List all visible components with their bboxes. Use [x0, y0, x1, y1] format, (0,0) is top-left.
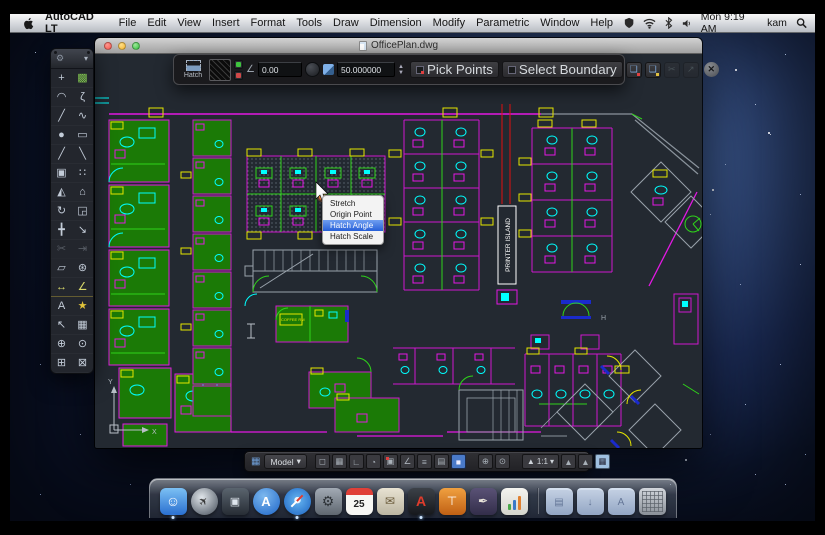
- scale-icon: [323, 64, 334, 75]
- select-boundary-button[interactable]: Select Boundary: [502, 61, 623, 78]
- lineweight-toggle[interactable]: ≡: [417, 454, 432, 469]
- drawing-canvas[interactable]: PRINTER ISLAND: [95, 54, 702, 448]
- properties-toggle[interactable]: ▤: [434, 454, 449, 469]
- ucs-y-label: Y: [108, 379, 113, 386]
- menu-file[interactable]: File: [119, 17, 137, 29]
- dock: ☺✈▣A⚙25✉A⊤✒▤↓A: [149, 478, 677, 518]
- coffee-room-label: COFFEE RM: [281, 317, 305, 322]
- utility-closet: [674, 294, 698, 344]
- otrack-toggle[interactable]: ∠: [400, 454, 415, 469]
- applications-folder-dock-icon[interactable]: A: [608, 486, 635, 516]
- volume-icon[interactable]: [682, 18, 692, 29]
- add-boundary-icon[interactable]: ❏: [626, 62, 642, 78]
- layout-grid-icon[interactable]: ▦: [251, 456, 260, 467]
- menu-view[interactable]: View: [177, 17, 201, 29]
- selection-tool[interactable]: +: [51, 69, 72, 88]
- wifi-icon[interactable]: [643, 18, 656, 29]
- autocad-dock-icon-tile: A: [408, 488, 435, 515]
- downloads-folder-dock-icon-tile: ↓: [577, 488, 604, 515]
- numbers-dock-icon[interactable]: [501, 486, 528, 516]
- annotation-icon: ▲: [527, 457, 535, 466]
- context-menu-item-hatch-scale[interactable]: Hatch Scale: [323, 231, 383, 242]
- scale-tool[interactable]: ◲: [72, 202, 93, 221]
- insert-block-tool[interactable]: ★: [72, 297, 93, 316]
- circle-tool[interactable]: ●: [51, 126, 72, 145]
- trash-dock-icon[interactable]: [639, 486, 666, 516]
- numbers-dock-icon-tile: [501, 488, 528, 515]
- calendar-dock-icon[interactable]: 25: [346, 486, 373, 516]
- trim-hatch-icon: ✂: [664, 62, 680, 78]
- hatch-color-red-button[interactable]: [234, 71, 243, 80]
- nav-buttons: ⊕⊙: [478, 454, 510, 469]
- documents-folder-dock-icon-tile: ▤: [546, 488, 573, 515]
- autocad-window: OfficePlan.dwg: [95, 38, 702, 448]
- hatch-scale-input[interactable]: [337, 62, 395, 77]
- menu-window[interactable]: Window: [540, 17, 579, 29]
- shield-icon[interactable]: [624, 17, 634, 29]
- array-tool[interactable]: ∷: [72, 164, 93, 183]
- h-marker: H: [601, 315, 606, 322]
- dock-separator: [532, 486, 542, 516]
- table-tool[interactable]: ▦: [72, 316, 93, 335]
- rectangle-tool[interactable]: ▭: [72, 126, 93, 145]
- app-menu-title[interactable]: AutoCAD LT: [45, 14, 107, 35]
- annotation-visibility-button[interactable]: ▲: [578, 454, 593, 469]
- context-menu: StretchOrigin PointHatch AngleHatch Scal…: [322, 195, 384, 245]
- menu-bar-user[interactable]: kam: [767, 17, 787, 29]
- screw-decoration: [54, 51, 57, 54]
- annotation-scale-dropdown[interactable]: ▲ 1:1 ▾: [522, 454, 559, 469]
- arc-tool[interactable]: ◠: [51, 88, 72, 107]
- move-tool[interactable]: ╋: [51, 221, 72, 240]
- launchpad-dock-icon-tile: ✈: [191, 488, 218, 515]
- printer-island: PRINTER ISLAND: [497, 104, 517, 304]
- hatch-angle-input[interactable]: [258, 62, 302, 77]
- trash-dock-icon-tile: [639, 488, 666, 515]
- launchpad-dock-icon[interactable]: ✈: [191, 486, 218, 516]
- hatch-editor-toolbar: Hatch ∠ ▲▼ Pick Points Select Boundary ❏…: [173, 54, 625, 85]
- mail-dock-icon-tile: ✉: [377, 488, 404, 515]
- double-doors: H: [561, 300, 606, 322]
- scale-stepper[interactable]: ▲▼: [398, 64, 407, 76]
- hatch-tool-label: Hatch: [184, 72, 202, 79]
- inherit-properties-icon: ↗: [683, 62, 699, 78]
- bluetooth-icon[interactable]: [665, 17, 672, 29]
- clean-screen-button[interactable]: ▦: [595, 454, 610, 469]
- center-bottom-rooms: [309, 358, 399, 432]
- apple-menu-icon[interactable]: [22, 17, 35, 30]
- diagonal-offices: [631, 162, 702, 248]
- documents-folder-dock-icon[interactable]: ▤: [546, 486, 573, 516]
- stairwell: [245, 250, 377, 306]
- window-title-text: OfficePlan.dwg: [371, 40, 438, 51]
- grid-toggle[interactable]: ▦: [332, 454, 347, 469]
- copy-tool[interactable]: ▣: [51, 164, 72, 183]
- stretch-tool[interactable]: ↘: [72, 221, 93, 240]
- quick-properties-toggle[interactable]: ■: [451, 454, 466, 469]
- running-indicator: [296, 516, 299, 519]
- mirror-tool[interactable]: ◭: [51, 183, 72, 202]
- osnap-toggle[interactable]: ▣: [383, 454, 398, 469]
- hatch-tool[interactable]: ▩: [72, 69, 93, 88]
- menu-dimension[interactable]: Dimension: [370, 17, 422, 29]
- hatch-extra-buttons: ❏❏✂↗: [626, 62, 699, 78]
- running-indicator: [420, 516, 423, 519]
- downloads-folder-dock-icon[interactable]: ↓: [577, 486, 604, 516]
- angular-dimension-tool[interactable]: ∠: [72, 278, 93, 297]
- chevron-down-icon: ▾: [550, 457, 554, 466]
- close-hatch-toolbar-button[interactable]: ✕: [704, 62, 719, 77]
- zoom-tool[interactable]: ⊙: [72, 335, 93, 354]
- drafting-toggles: ◻▦∟◔▣∠≡▤■: [315, 454, 466, 469]
- extend-tool[interactable]: ⇥: [72, 240, 93, 259]
- drafting-status-bar: ▦ Model ▾ ◻▦∟◔▣∠≡▤■ ⊕⊙ ▲ 1:1 ▾ ▲▲ ▦: [244, 451, 590, 472]
- tool-palette: ⚙ ▾ +▩◠ζ╱∿●▭╱╲▣∷◭⌂↻◲╋↘✂⇥▱⊛↔∠A★↖▦⊕⊙⊞⊠: [50, 48, 94, 374]
- tool-grid: +▩◠ζ╱∿●▭╱╲▣∷◭⌂↻◲╋↘✂⇥▱⊛↔∠A★↖▦⊕⊙⊞⊠: [51, 69, 93, 373]
- keynote-dock-icon[interactable]: ⊤: [439, 486, 466, 516]
- bottom-band-cubicles: [393, 348, 587, 404]
- menu-bar: AutoCAD LT FileEditViewInsertFormatTools…: [10, 14, 815, 33]
- floorplan-drawing: PRINTER ISLAND: [95, 54, 702, 448]
- menu-edit[interactable]: Edit: [147, 17, 166, 29]
- menu-items: FileEditViewInsertFormatToolsDrawDimensi…: [119, 17, 624, 29]
- text-tool[interactable]: A: [51, 297, 72, 316]
- polygon-tool[interactable]: ⌂: [72, 183, 93, 202]
- trim-tool[interactable]: ✂: [51, 240, 72, 259]
- new-boundary-set-icon[interactable]: ❏: [645, 62, 661, 78]
- window-title: OfficePlan.dwg: [95, 40, 702, 51]
- safari-dock-icon-tile: [284, 488, 311, 515]
- menu-parametric[interactable]: Parametric: [476, 17, 529, 29]
- coffee-room: COFFEE RM: [276, 306, 349, 342]
- explode-tool[interactable]: ⊛: [72, 259, 93, 278]
- ucs-x-label: X: [152, 429, 157, 436]
- zoom-extents-tool[interactable]: ⊠: [72, 354, 93, 373]
- pages-dock-icon[interactable]: ✒: [470, 486, 497, 516]
- app-store-dock-icon[interactable]: A: [253, 486, 280, 516]
- autocad-dock-icon[interactable]: A: [408, 486, 435, 516]
- annotation-autoscale-button[interactable]: ▲: [561, 454, 576, 469]
- pick-points-button[interactable]: Pick Points: [410, 61, 499, 78]
- palette-collapse-icon[interactable]: ▾: [84, 55, 88, 63]
- context-menu-item-hatch-angle[interactable]: Hatch Angle: [323, 220, 383, 231]
- zoom-window-tool[interactable]: ⊞: [51, 354, 72, 373]
- menu-bar-status-area: Mon 9:19 AM kam: [624, 14, 807, 35]
- menu-tools[interactable]: Tools: [296, 17, 322, 29]
- menu-insert[interactable]: Insert: [212, 17, 240, 29]
- keynote-dock-icon-tile: ⊤: [439, 488, 466, 515]
- angle-icon: ∠: [246, 64, 255, 75]
- annotation-buttons: ▲▲: [561, 454, 593, 469]
- model-space-dropdown[interactable]: Model ▾: [264, 454, 306, 469]
- hatch-color-green-button[interactable]: [234, 60, 243, 69]
- document-icon: [359, 41, 367, 51]
- leader-tool[interactable]: ↖: [51, 316, 72, 335]
- safari-dock-icon[interactable]: [284, 486, 311, 516]
- linear-dimension-tool[interactable]: ↔: [51, 278, 72, 297]
- menu-bar-clock[interactable]: Mon 9:19 AM: [701, 14, 758, 35]
- window-title-bar[interactable]: OfficePlan.dwg: [95, 38, 702, 54]
- system-preferences-dock-icon[interactable]: ⚙: [315, 486, 342, 516]
- system-preferences-dock-icon-tile: ⚙: [315, 488, 342, 515]
- zoom-button[interactable]: ⊙: [495, 454, 510, 469]
- polar-toggle[interactable]: ◔: [366, 454, 381, 469]
- mail-dock-icon[interactable]: ✉: [377, 486, 404, 516]
- hatch-preview-icon: [186, 60, 201, 71]
- spotlight-search-icon[interactable]: [796, 17, 807, 29]
- hatch-pattern-swatch[interactable]: [209, 59, 231, 81]
- angle-dial-knob[interactable]: [305, 62, 320, 77]
- calendar-dock-icon-tile: 25: [346, 488, 373, 515]
- diagonal-rooms-bottom: [541, 350, 699, 448]
- finder-dock-icon-tile: ☺: [160, 488, 187, 515]
- running-indicator: [172, 516, 175, 519]
- mission-control-dock-icon[interactable]: ▣: [222, 486, 249, 516]
- hatch-tool-button[interactable]: Hatch: [180, 60, 206, 79]
- line-tool[interactable]: ╱: [51, 107, 72, 126]
- tool-palette-header[interactable]: ⚙ ▾: [51, 49, 93, 69]
- context-menu-item-stretch[interactable]: Stretch: [323, 198, 383, 209]
- select-boundary-icon: [508, 66, 516, 74]
- cubicle-strip: [181, 120, 231, 416]
- mid-cubicle-bay: [389, 120, 493, 290]
- snap-toggle[interactable]: ◻: [315, 454, 330, 469]
- pan-tool[interactable]: ⊕: [51, 335, 72, 354]
- pick-points-icon: [416, 66, 424, 74]
- desktop[interactable]: AutoCAD LT FileEditViewInsertFormatTools…: [10, 14, 815, 521]
- menu-modify[interactable]: Modify: [433, 17, 465, 29]
- bottom-right-cluster: [525, 335, 621, 426]
- pan-button[interactable]: ⊕: [478, 454, 493, 469]
- context-menu-item-origin-point[interactable]: Origin Point: [323, 209, 383, 220]
- ibeam-mark: [247, 324, 255, 338]
- screw-decoration: [87, 51, 90, 54]
- menu-draw[interactable]: Draw: [333, 17, 359, 29]
- finder-dock-icon[interactable]: ☺: [160, 486, 187, 516]
- chevron-down-icon: ▾: [297, 456, 301, 467]
- menu-format[interactable]: Format: [251, 17, 286, 29]
- printer-island-label: PRINTER ISLAND: [505, 218, 512, 272]
- bottom-stairwell: [459, 376, 523, 440]
- rotate-tool[interactable]: ↻: [51, 202, 72, 221]
- construction-line-tool[interactable]: ╱: [51, 145, 72, 164]
- erase-tool[interactable]: ▱: [51, 259, 72, 278]
- ortho-toggle[interactable]: ∟: [349, 454, 364, 469]
- applications-folder-dock-icon-tile: A: [608, 488, 635, 515]
- mission-control-dock-icon-tile: ▣: [222, 488, 249, 515]
- pages-dock-icon-tile: ✒: [470, 488, 497, 515]
- spline-tool[interactable]: ζ: [72, 88, 93, 107]
- ray-tool[interactable]: ╲: [72, 145, 93, 164]
- right-cubicle-bay: [519, 120, 612, 272]
- polyline-tool[interactable]: ∿: [72, 107, 93, 126]
- menu-help[interactable]: Help: [590, 17, 613, 29]
- hatch-color-buttons: [234, 60, 243, 80]
- app-store-dock-icon-tile: A: [253, 488, 280, 515]
- palette-gear-icon[interactable]: ⚙: [56, 54, 64, 63]
